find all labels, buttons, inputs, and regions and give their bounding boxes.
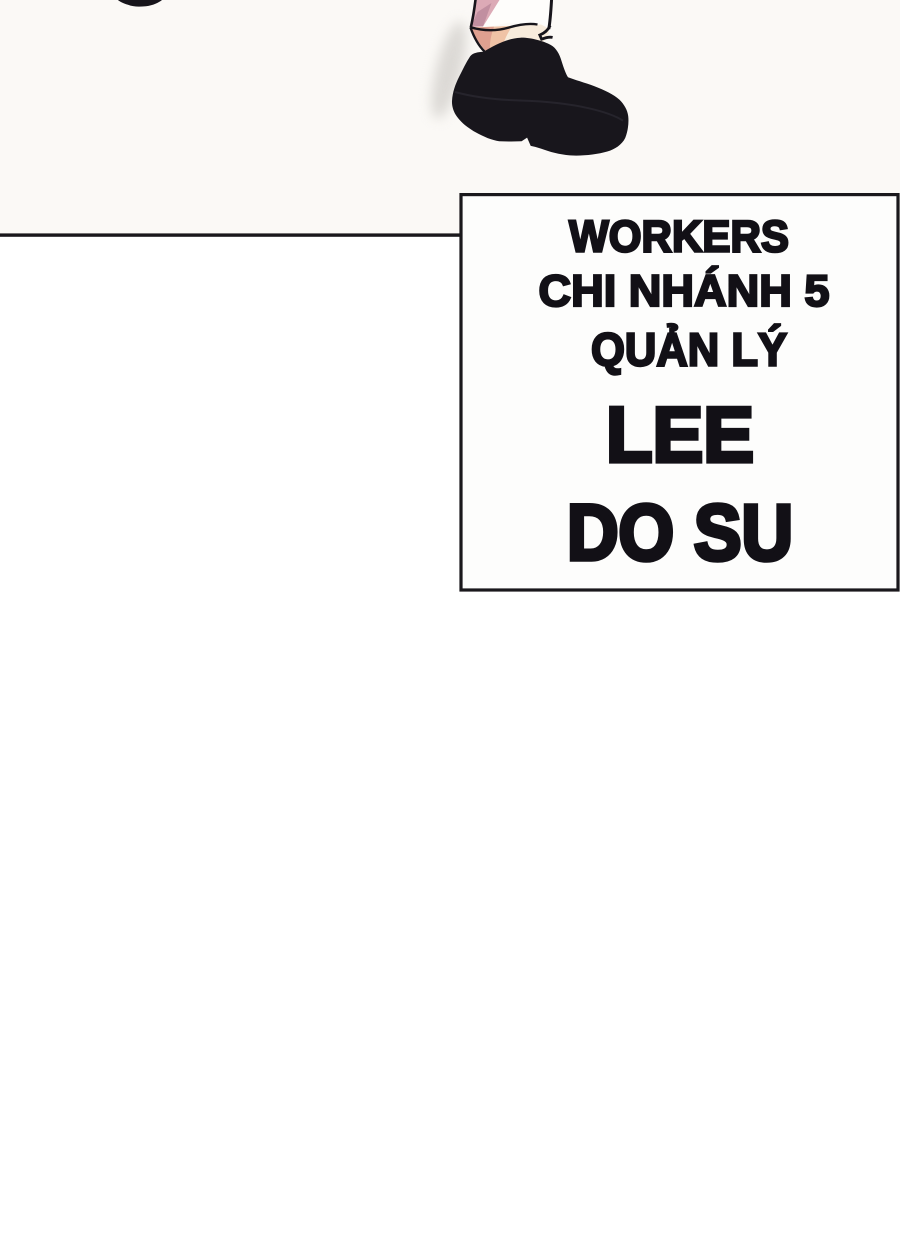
svg-text:LEE: LEE xyxy=(606,392,754,479)
svg-text:QUẢN LÝ: QUẢN LÝ xyxy=(591,324,787,376)
svg-text:CHI NHÁNH 5: CHI NHÁNH 5 xyxy=(539,266,830,315)
svg-text:DO SU: DO SU xyxy=(567,487,793,576)
svg-text:WORKERS: WORKERS xyxy=(569,212,789,261)
